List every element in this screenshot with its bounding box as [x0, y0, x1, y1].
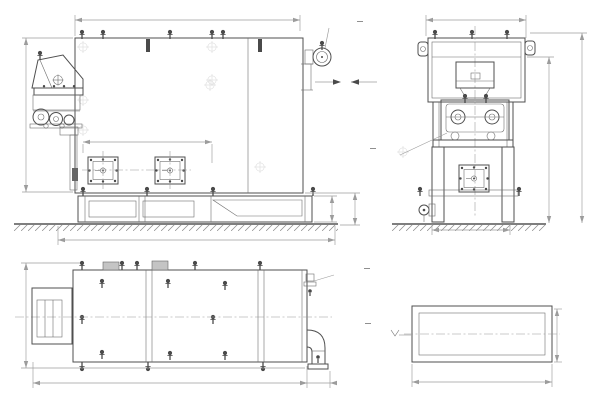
- side-view: [392, 26, 546, 231]
- water-outlet-flange: [305, 28, 331, 66]
- boiler-body-plan: [73, 270, 307, 362]
- front-view: [14, 28, 377, 231]
- boiler-body-side: [428, 38, 525, 102]
- drawing-linework: [0, 0, 600, 400]
- detail-view-a: [391, 306, 562, 387]
- ground-hatch: [14, 225, 338, 231]
- plan-view-dimensions: [21, 263, 337, 388]
- grate-panel: [89, 201, 136, 217]
- top-bracket: [152, 261, 168, 270]
- water-inlet-stub: [304, 274, 334, 296]
- boiler-body-front: [75, 38, 303, 193]
- label-water-outlet: [357, 20, 363, 22]
- grate-panel: [143, 201, 194, 217]
- feeder-leader-line: [400, 133, 447, 155]
- lifting-lug: [146, 39, 150, 52]
- crosshair-watermarks: [77, 41, 409, 173]
- drawing-sheet: [0, 0, 600, 400]
- label-water-inlet: [364, 267, 370, 269]
- feeder-mechanism: [441, 94, 509, 140]
- front-view-dimensions: [22, 15, 360, 245]
- gas-flow-arrow: [315, 79, 341, 85]
- plan-view: [15, 261, 334, 371]
- side-view-dimensions: [426, 15, 587, 235]
- section-cut-arrow: [351, 79, 377, 85]
- lifting-lug: [418, 42, 428, 56]
- elbow-pipe: [307, 330, 328, 369]
- elevation-mark-value: [365, 322, 371, 324]
- base-frame: [78, 196, 312, 222]
- burner-box-plan: [32, 288, 72, 344]
- lifting-lug: [258, 39, 262, 52]
- support-leg: [432, 147, 444, 222]
- access-door: [459, 165, 489, 192]
- label-feeder: [370, 147, 376, 149]
- top-bracket: [103, 262, 119, 270]
- lifting-lug: [525, 41, 535, 55]
- elevation-mark-symbol: [391, 330, 412, 336]
- support-leg: [502, 147, 514, 222]
- pump-fitting: [419, 204, 435, 222]
- ash-hopper-profile: [213, 200, 302, 216]
